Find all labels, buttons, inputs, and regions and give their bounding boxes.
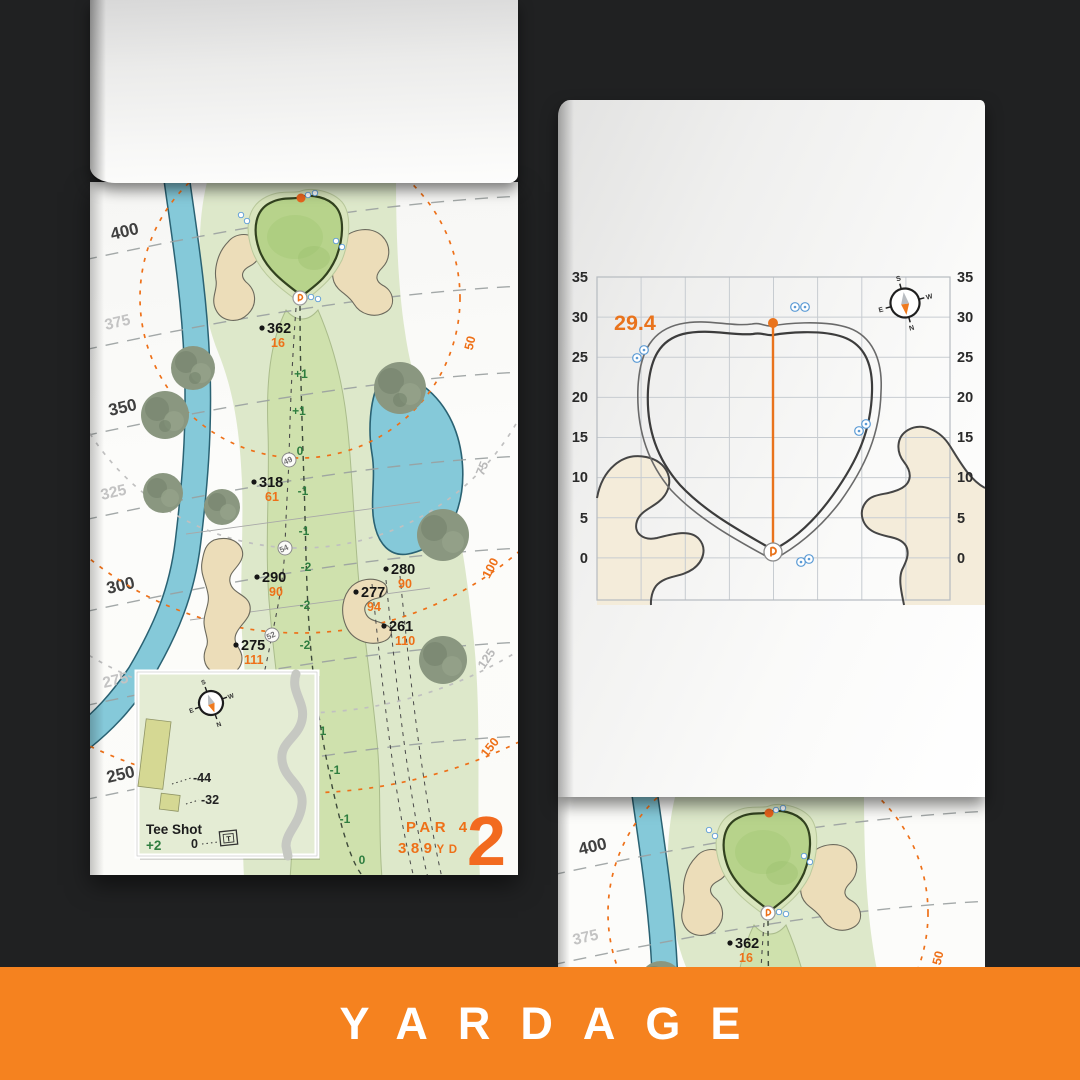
slope-value: -2 [301,560,312,574]
flipped-page [90,0,518,183]
zero-label: 0 [191,837,198,851]
tee-inset-title: Tee Shot [146,822,203,837]
compass-letter: E [878,306,885,314]
distance-label: 325 [99,481,128,503]
axis-tick: 25 [957,350,973,366]
carry-value: 277 [361,585,385,601]
river [90,182,198,738]
distance-label: 400 [109,219,141,244]
hole-map: 400 375 350 325 300 275 250 5 [558,797,985,969]
tree-icon [204,489,240,525]
axis-tick: 15 [572,430,588,446]
axis-tick: 10 [572,470,588,486]
axis-tick: 15 [957,430,973,446]
axis-tick: 35 [572,270,588,286]
yardage-label: 389 [398,840,437,857]
depth-measure [764,318,782,561]
slope-value: +1 [292,404,306,418]
axis-tick: 20 [572,390,588,406]
pitch-value: 90 [269,585,283,599]
offset-label: -44 [193,771,211,785]
left-booklet: 400 375 350 325 300 275 250 5 [90,0,518,875]
depth-value: 29.4 [614,311,656,335]
distance-label: 400 [577,834,609,859]
slope-value: -1 [340,812,351,826]
tee-inset: S N W E -44 -32 [136,671,320,860]
axis-tick: 10 [957,470,973,486]
pitch-value: 61 [265,490,279,504]
axis-tick: 30 [572,310,588,326]
arc-label: 50 [462,335,479,352]
axis-tick: 0 [580,551,588,567]
tree-icon [417,509,469,561]
pitch-value: 110 [395,634,415,648]
flag-dot [765,809,774,818]
slope-value: -2 [300,598,311,612]
carry-value: 362 [735,936,759,952]
arc-label: 125 [475,646,498,671]
tee-inset-slope: +2 [146,838,161,853]
axis-tick: 0 [957,551,965,567]
carry-value: 318 [259,475,283,491]
slope-value: 0 [359,853,366,867]
tree-icon [419,636,467,684]
axis-tick: 5 [957,511,965,527]
distance-label: 300 [105,573,137,598]
slope-value: 0 [297,444,304,458]
tree-icon [141,391,189,439]
distance-label: 350 [107,395,139,420]
tree-icon [143,473,183,513]
carry-value: 290 [262,570,286,586]
hole-map-duplicate: 400 375 350 325 300 275 250 5 [558,797,985,969]
pitch-value: 16 [271,336,285,350]
right-booklet: 400 375 350 325 300 275 250 5 [558,100,985,980]
sprinkler-dots [636,306,868,564]
sprinkler-icon [633,303,871,567]
green-chart: 29.4 35 30 25 20 15 10 5 0 35 30 25 20 [558,100,985,797]
compass-letter: W [925,293,934,302]
pin-icon [293,291,307,305]
green-outline [648,332,872,550]
next-hole-page: 400 375 350 325 300 275 250 5 [558,797,985,969]
slope-value: -2 [300,638,311,652]
flag-dot [297,194,306,203]
arc-label: 100 [479,556,501,581]
distance-label: 375 [103,311,132,333]
carry-value: 261 [389,619,413,635]
slope-value: +1 [294,367,308,381]
tree-icon [171,346,215,390]
axis-tick: 20 [957,390,973,406]
slope-value: -1 [299,524,310,538]
pin-icon [761,906,775,920]
green-detail-page: 29.4 35 30 25 20 15 10 5 0 35 30 25 20 [558,100,985,797]
yardage-banner: YARDAGE [0,967,1080,1080]
yardage-unit: YD [437,844,462,856]
banner-label: YARDAGE [310,998,771,1050]
pitch-value: 94 [367,600,381,614]
axis-tick: 30 [957,310,973,326]
depth-dot [768,318,778,328]
par-label: PAR 4 [406,819,472,836]
axis-tick: 35 [957,270,973,286]
tree-icon [374,362,426,414]
chart-bunkers-fill [597,427,985,605]
pitch-value: 111 [244,653,264,667]
pin-icon [764,543,782,561]
compass-letter: N [909,325,916,333]
axis-ticks-left: 35 30 25 20 15 10 5 0 [572,270,588,567]
carry-value: 275 [241,638,265,654]
tee-marker: T [219,830,237,846]
hole-map: 400 375 350 325 300 275 250 5 [90,182,518,875]
arc-label: 50 [930,950,947,967]
hole-map-page: 400 375 350 325 300 275 250 5 [90,182,518,875]
hole-number: 2 [467,802,506,875]
carry-value: 362 [267,321,291,337]
carry-value: 280 [391,562,415,578]
slope-value: -1 [330,763,341,777]
axis-tick: 5 [580,511,588,527]
pitch-value: 16 [739,951,753,965]
distance-label: 375 [571,926,600,948]
distance-label: 250 [105,762,137,787]
distance-labels: 400 375 350 325 300 275 250 [567,834,608,969]
tee-box [159,793,180,811]
axis-tick: 25 [572,350,588,366]
pitch-value: 90 [398,577,412,591]
scene: 400 375 350 325 300 275 250 5 [0,0,1080,1080]
slope-value: -1 [298,484,309,498]
offset-label: -32 [201,793,219,807]
